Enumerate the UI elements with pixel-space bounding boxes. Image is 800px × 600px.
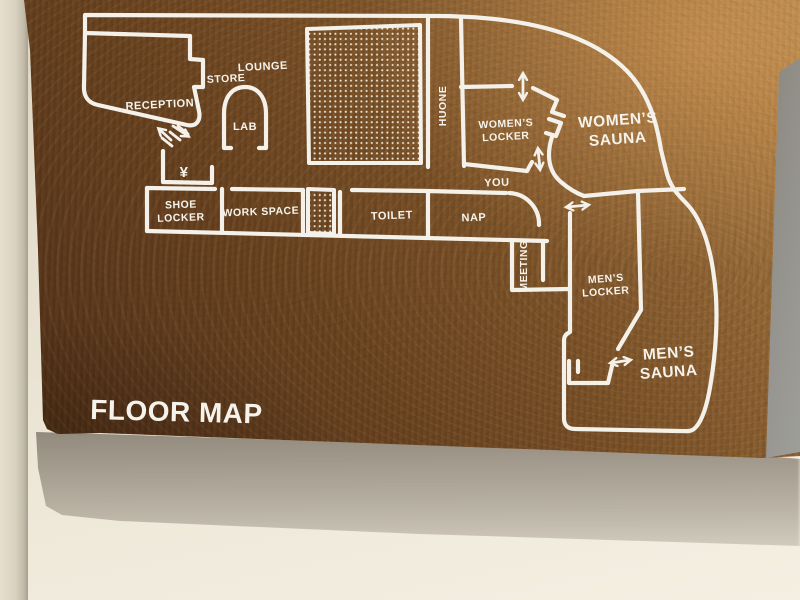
label-mens-sauna-line1: MEN’S	[642, 343, 695, 364]
label-toilet: TOILET	[371, 209, 413, 222]
nap-door-swing-icon	[509, 193, 539, 225]
label-mens-locker-line1: MEN’S	[588, 272, 625, 286]
label-womens-locker-line2: LOCKER	[482, 130, 530, 144]
label-you: YOU	[484, 177, 510, 190]
two-way-arrow-icon-womens-bottom	[538, 149, 540, 169]
south-corridor-wall	[147, 231, 547, 241]
label-huone: HUONE	[437, 86, 449, 126]
label-work-space: WORK SPACE	[222, 205, 299, 220]
label-lab: LAB	[233, 121, 257, 133]
hatched-area-large	[307, 25, 421, 163]
floor-plan-drawing: STORE LOUNGE RECEPTION LAB ¥ SHOE LOCKER…	[0, 0, 800, 600]
womens-locker-left-wall	[461, 19, 464, 166]
floor-map-sign-photo: STORE LOUNGE RECEPTION LAB ¥ SHOE LOCKER…	[0, 0, 800, 600]
room-shoe-work-top-wall	[147, 188, 303, 190]
hatched-area-small	[308, 189, 334, 234]
label-meeting: MEETING	[518, 240, 530, 291]
yen-symbol: ¥	[180, 164, 189, 181]
label-mens-locker-line2: LOCKER	[582, 284, 630, 299]
mens-locker-right-wall	[618, 191, 641, 349]
two-way-arrow-icon-mens-sauna	[611, 360, 630, 363]
label-womens-sauna-line2: SAUNA	[588, 129, 647, 150]
mens-sauna-bench-wall	[569, 361, 612, 383]
womens-locker-top-wall	[461, 86, 512, 87]
womens-locker-bottom-wall	[464, 162, 532, 171]
label-lounge: LOUNGE	[238, 60, 289, 75]
womens-sauna-step-wall	[533, 88, 564, 136]
label-mens-sauna-line2: SAUNA	[639, 362, 698, 383]
label-reception: RECEPTION	[125, 97, 194, 113]
label-nap: NAP	[461, 212, 486, 225]
label-shoe-locker-line1: SHOE	[165, 198, 197, 211]
room-lab-arch-wall	[224, 87, 266, 148]
label-shoe-locker-line2: LOCKER	[157, 211, 205, 225]
sign-title: FLOOR MAP	[90, 394, 263, 430]
two-way-arrow-icon-corridor	[567, 205, 588, 207]
